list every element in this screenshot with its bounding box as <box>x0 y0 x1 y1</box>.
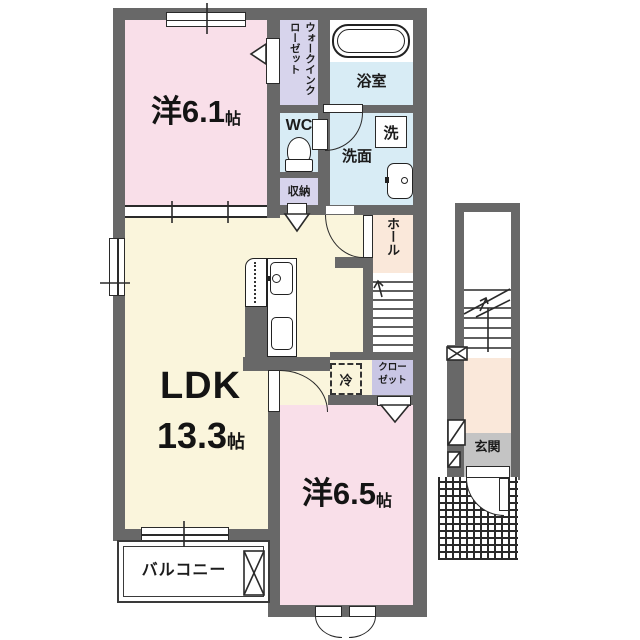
door-indicator-closet <box>377 396 411 406</box>
kitchen-faucet-icon <box>272 274 281 283</box>
door-leaf-bedroom2 <box>268 370 280 412</box>
wall-bedroom2-bottom <box>268 605 427 617</box>
toilet-tank-icon <box>285 159 313 172</box>
casement-arc-left <box>315 616 342 638</box>
door-indicator-storage <box>287 203 307 215</box>
kitchen-counter-dots <box>254 262 256 303</box>
storage-label: 収納 <box>280 181 318 201</box>
window-bedroom1-top <box>166 12 246 27</box>
wall-stairs-left <box>363 273 373 352</box>
kitchen-tap-icon <box>266 276 270 281</box>
closet-label: クローゼット <box>372 362 413 388</box>
bathtub-icon <box>332 24 410 58</box>
bath-label: 浴室 <box>330 68 413 92</box>
washer-label: 洗 <box>383 122 398 143</box>
entrance-door-leaf <box>499 478 509 511</box>
wall-right <box>413 8 427 617</box>
wc-label: WC <box>280 115 318 137</box>
entrance-label: 玄関 <box>464 434 511 456</box>
bedroom2-label: 洋6.5帖 <box>284 475 410 513</box>
door-leaf-bath <box>323 104 363 113</box>
casement-arc-right <box>349 616 376 638</box>
wall-corridor-stub <box>335 257 373 268</box>
entry-hall-area <box>464 358 511 433</box>
wall-wic-bottom <box>280 105 318 113</box>
stairs-2f-area <box>373 273 413 352</box>
window-ldk-left <box>109 238 125 296</box>
wall-kitchen-vertical <box>245 305 267 357</box>
kitchen-counter <box>245 258 267 307</box>
door-leaf-hall <box>363 215 373 258</box>
hall-label: ホール <box>386 217 402 271</box>
door-indicator-walkin-closet <box>266 38 280 84</box>
entrance-door-frame <box>466 466 510 478</box>
sink-icon <box>387 163 413 199</box>
washroom-label: 洗面 <box>326 144 388 166</box>
sink-tap-icon <box>385 177 389 183</box>
floor-plan: 洗 冷 <box>0 0 640 640</box>
ldk-size-label: 13.3帖 <box>140 415 262 457</box>
kitchen-stove-icon <box>271 317 293 350</box>
doorway-washroom <box>326 206 354 214</box>
entry-stair-area <box>464 212 511 358</box>
bedroom1-label: 洋6.1帖 <box>128 93 264 131</box>
balcony-label: バルコニー <box>128 557 240 579</box>
window-ldk-bottom <box>141 527 229 541</box>
entry-left-wall-lower <box>447 345 464 480</box>
fridge-box: 冷 <box>330 363 362 395</box>
ldk-label: LDK <box>143 368 258 408</box>
wall-stairs-bottom <box>330 352 415 360</box>
sliding-partition-bedroom1-ldk <box>125 205 267 218</box>
walkin-closet-label: ウォークインクローゼット <box>281 22 317 104</box>
sink-faucet-icon <box>401 177 408 184</box>
fridge-label: 冷 <box>339 370 352 389</box>
wall-wc-bottom <box>280 172 318 178</box>
